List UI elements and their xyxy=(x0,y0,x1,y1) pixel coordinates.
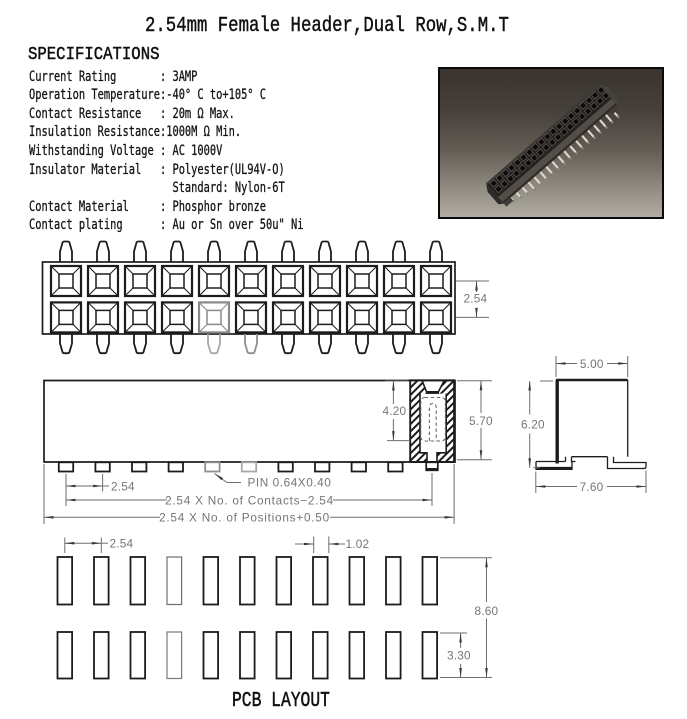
svg-text:4.20: 4.20 xyxy=(383,404,407,418)
svg-text:PIN 0.64X0.40: PIN 0.64X0.40 xyxy=(248,476,332,490)
svg-text:5.70: 5.70 xyxy=(469,414,493,428)
svg-text:6.20: 6.20 xyxy=(521,418,545,432)
svg-text:5.00: 5.00 xyxy=(580,357,604,371)
svg-text:2.54: 2.54 xyxy=(110,537,134,551)
svg-text:7.60: 7.60 xyxy=(580,480,604,494)
svg-text:2.54: 2.54 xyxy=(464,292,488,306)
svg-text:2.54: 2.54 xyxy=(111,480,135,494)
svg-text:2.54 X No. of Contacts−2.54: 2.54 X No. of Contacts−2.54 xyxy=(165,493,334,507)
svg-text:2.54 X No. of Positions+0.50: 2.54 X No. of Positions+0.50 xyxy=(159,511,330,525)
svg-text:1.02: 1.02 xyxy=(346,537,370,551)
svg-text:3.30: 3.30 xyxy=(447,649,471,663)
svg-text:8.60: 8.60 xyxy=(475,604,499,618)
